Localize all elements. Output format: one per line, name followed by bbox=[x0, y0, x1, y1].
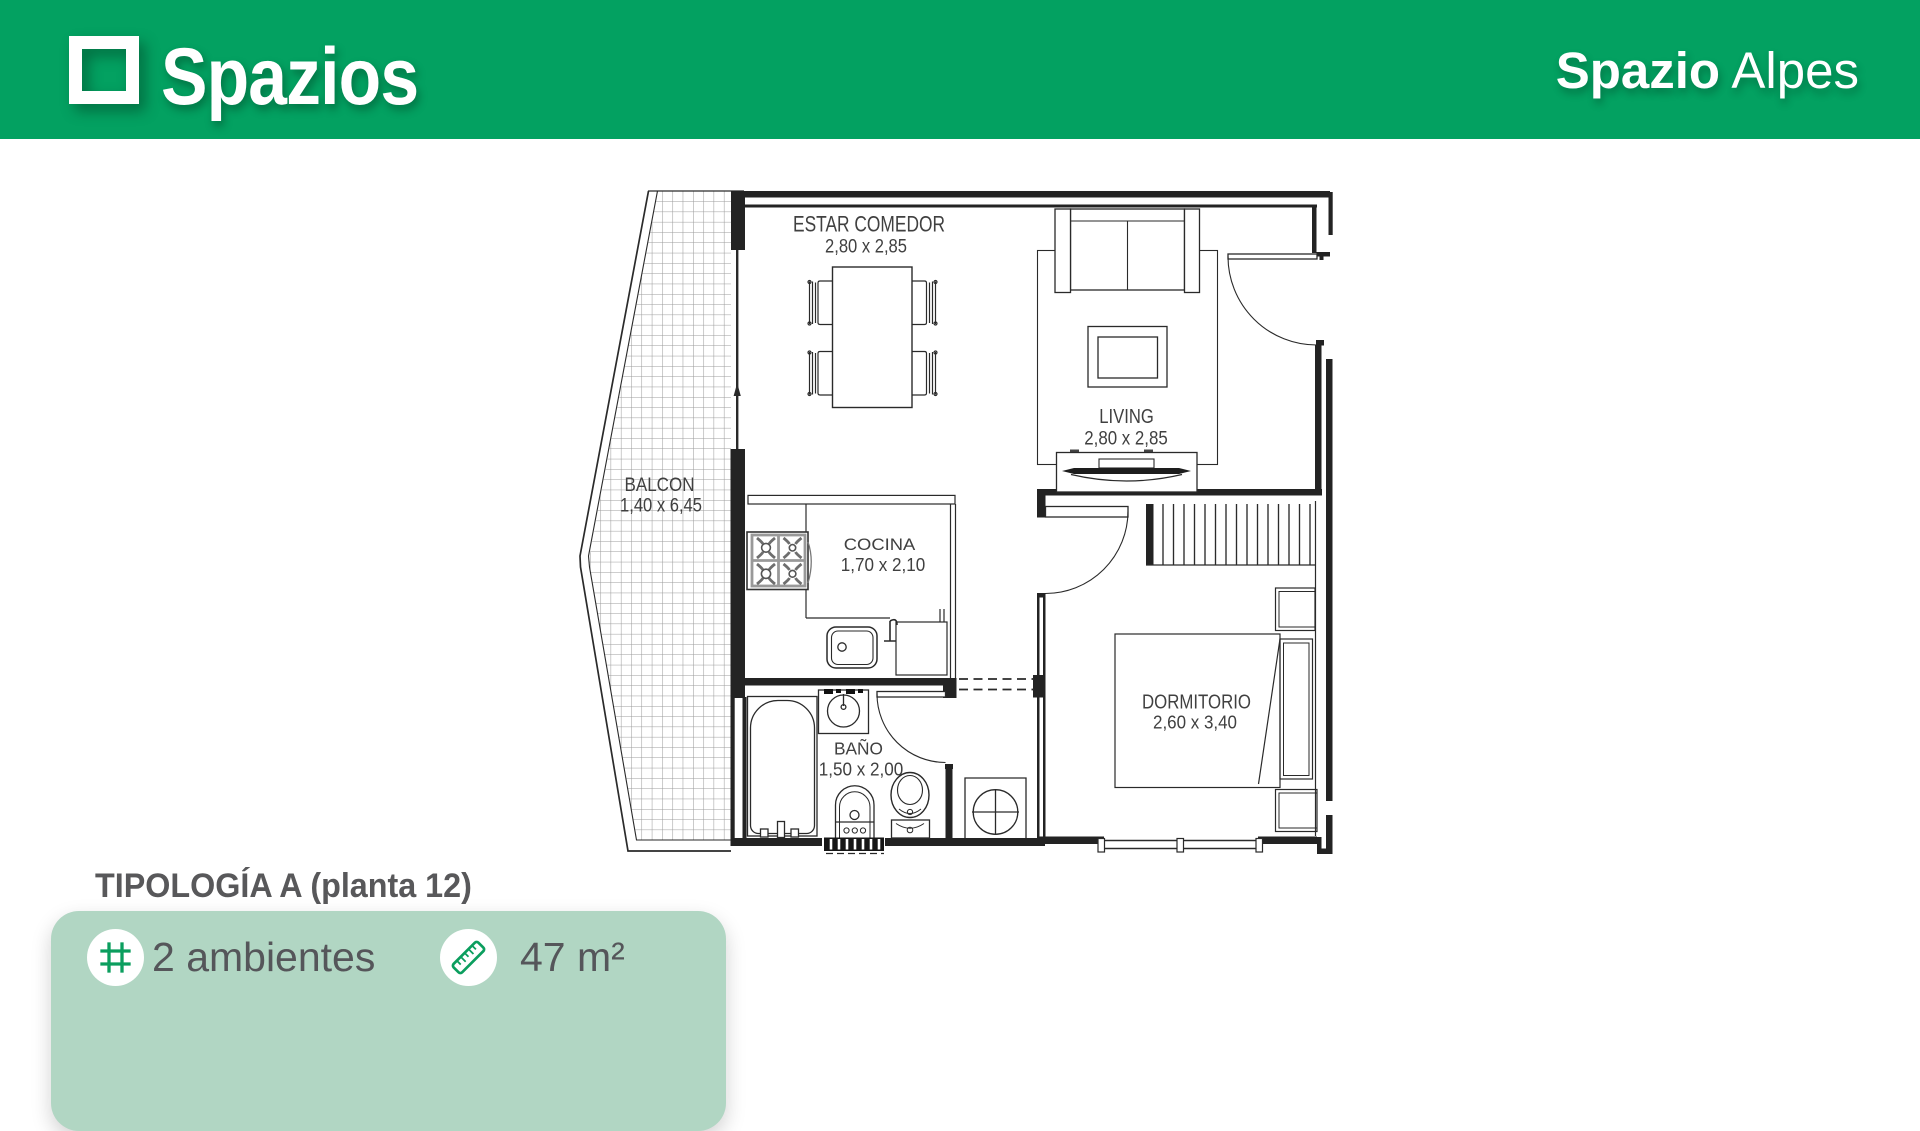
svg-text:BAÑO: BAÑO bbox=[834, 738, 883, 759]
svg-text:DORMITORIO: DORMITORIO bbox=[1142, 692, 1251, 714]
svg-text:2,60 x 3,40: 2,60 x 3,40 bbox=[1153, 713, 1237, 733]
svg-text:LIVING: LIVING bbox=[1099, 405, 1154, 428]
svg-text:1,40 x 6,45: 1,40 x 6,45 bbox=[620, 496, 702, 517]
svg-text:ESTAR COMEDOR: ESTAR COMEDOR bbox=[793, 212, 945, 237]
svg-text:2,80 x 2,85: 2,80 x 2,85 bbox=[825, 236, 907, 257]
svg-text:1,50 x 2,00: 1,50 x 2,00 bbox=[819, 760, 904, 780]
svg-text:2,80 x 2,85: 2,80 x 2,85 bbox=[1084, 429, 1168, 450]
svg-text:BALCON: BALCON bbox=[625, 475, 695, 496]
svg-text:1,70 x 2,10: 1,70 x 2,10 bbox=[841, 555, 926, 575]
svg-text:COCINA: COCINA bbox=[844, 535, 916, 554]
